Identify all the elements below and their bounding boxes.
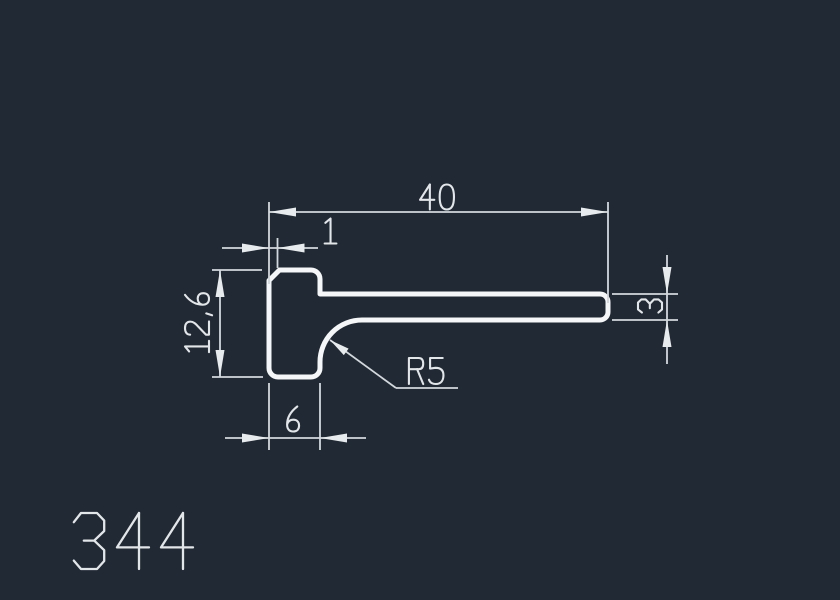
arrowhead [242, 434, 269, 443]
arrowhead [663, 267, 672, 294]
part-number-label [74, 513, 193, 569]
dim-foot-width-label [287, 407, 299, 432]
arrowhead [663, 320, 672, 347]
dim-foot-width [225, 383, 366, 450]
dim-chamfer [222, 219, 336, 269]
dim-total-width-label [420, 185, 454, 210]
dim-chamfer-label [325, 219, 337, 244]
dim-arm-thickness-label [638, 299, 662, 312]
arrowhead [581, 208, 608, 217]
arrowhead [330, 340, 349, 355]
arrowhead [320, 434, 347, 443]
leader-fillet-radius-label [409, 358, 444, 384]
dim-arm-thickness [612, 255, 678, 364]
cad-canvas [0, 0, 840, 600]
arrowhead [278, 244, 305, 253]
dim-total-height-label [185, 293, 212, 352]
dim-total-height [185, 270, 263, 377]
leader-fillet-radius [330, 340, 458, 388]
arrowhead [242, 244, 269, 253]
arrowhead [216, 350, 225, 377]
arrowhead [269, 208, 296, 217]
arrowhead [216, 270, 225, 297]
profile-outline [269, 270, 608, 377]
